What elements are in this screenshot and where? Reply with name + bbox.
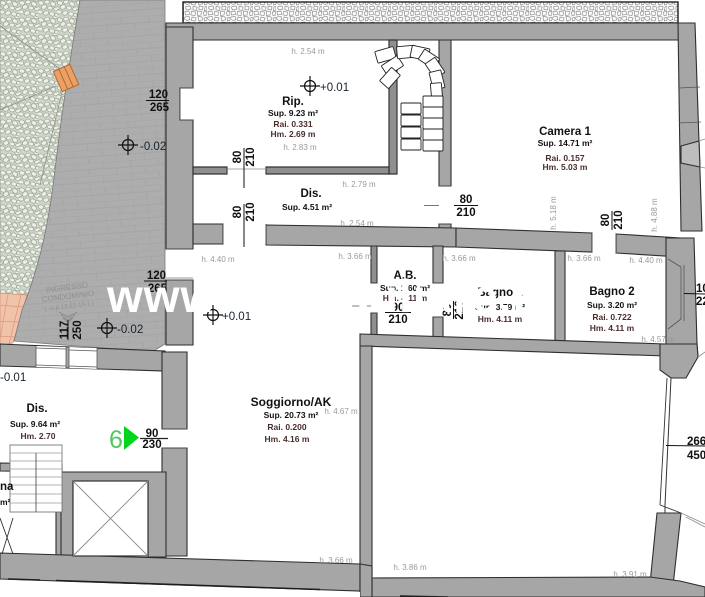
- svg-text:22: 22: [696, 296, 705, 308]
- svg-text:h. 3.66 m: h. 3.66 m: [442, 254, 476, 263]
- svg-text:-0.02: -0.02: [140, 141, 166, 153]
- svg-text:h. 4.57 m: h. 4.57 m: [641, 335, 675, 344]
- svg-text:+0.01: +0.01: [320, 82, 349, 94]
- svg-text:Rai. 0.200: Rai. 0.200: [267, 422, 306, 432]
- svg-text:230: 230: [142, 439, 161, 451]
- svg-text:-0.02: -0.02: [117, 324, 143, 336]
- svg-text:210: 210: [245, 147, 257, 166]
- svg-text:h. 2.54 m: h. 2.54 m: [340, 219, 374, 228]
- svg-text:h. 3.86 m: h. 3.86 m: [393, 563, 427, 572]
- svg-text:265: 265: [150, 102, 170, 114]
- svg-text:Rai. 0.331: Rai. 0.331: [273, 119, 312, 129]
- svg-text:m²: m²: [0, 497, 11, 507]
- svg-text:-0.01: -0.01: [0, 372, 26, 384]
- svg-text:Rai. 0.722: Rai. 0.722: [592, 312, 631, 322]
- svg-text:117: 117: [59, 321, 71, 340]
- svg-text:h. 4.88 m: h. 4.88 m: [650, 198, 659, 232]
- svg-text:80: 80: [460, 194, 473, 206]
- svg-text:Hm. 4.11 m: Hm. 4.11 m: [590, 323, 635, 333]
- svg-text:Rip.: Rip.: [282, 96, 304, 108]
- svg-text:Sup. 9.64 m²: Sup. 9.64 m²: [10, 419, 60, 429]
- svg-text:6: 6: [109, 426, 123, 454]
- svg-text:Bagno 2: Bagno 2: [589, 286, 634, 298]
- svg-text:120: 120: [149, 89, 168, 101]
- svg-text:h. 3.66 m: h. 3.66 m: [319, 556, 353, 565]
- svg-text:Hm. 5.03 m: Hm. 5.03 m: [543, 162, 588, 172]
- svg-text:80: 80: [600, 214, 612, 227]
- svg-text:Hm. 4.16 m: Hm. 4.16 m: [265, 434, 310, 444]
- svg-text:210: 210: [456, 207, 475, 219]
- svg-text:na: na: [0, 481, 14, 493]
- svg-text:h. 5.18 m: h. 5.18 m: [549, 196, 558, 230]
- svg-text:h. 4.67 m: h. 4.67 m: [324, 407, 358, 416]
- svg-text:250: 250: [72, 320, 84, 339]
- svg-text:h. 3.66 m: h. 3.66 m: [338, 252, 372, 261]
- svg-text:Hm. 2.70: Hm. 2.70: [21, 431, 56, 441]
- svg-text:Sup. 14.71 m²: Sup. 14.71 m²: [538, 138, 593, 148]
- svg-text:Dis.: Dis.: [300, 188, 321, 200]
- svg-text:h. 3.66 m: h. 3.66 m: [567, 254, 601, 263]
- svg-text:450: 450: [687, 450, 705, 462]
- svg-text:h. 4.40 m: h. 4.40 m: [629, 256, 663, 265]
- svg-text:Dis.: Dis.: [26, 403, 47, 415]
- svg-text:80: 80: [232, 206, 244, 219]
- svg-text:h. 2.83 m: h. 2.83 m: [283, 143, 317, 152]
- svg-text:Sup. 4.51 m²: Sup. 4.51 m²: [282, 202, 332, 212]
- svg-text:Sup. 9.23 m²: Sup. 9.23 m²: [268, 108, 318, 118]
- svg-text:h. 3.91 m: h. 3.91 m: [613, 570, 647, 579]
- svg-text:h. 2.79 m: h. 2.79 m: [342, 180, 376, 189]
- svg-text:210: 210: [613, 210, 625, 229]
- svg-text:h. 2.54 m: h. 2.54 m: [291, 47, 325, 56]
- svg-text:10: 10: [696, 283, 705, 295]
- svg-text:Hm. 2.69 m: Hm. 2.69 m: [271, 129, 316, 139]
- svg-text:210: 210: [245, 202, 257, 221]
- svg-text:Soggiorno/AK: Soggiorno/AK: [251, 395, 332, 409]
- svg-text:Camera 1: Camera 1: [539, 126, 591, 138]
- svg-text:Sup. 20.73 m²: Sup. 20.73 m²: [264, 410, 319, 420]
- svg-text:80: 80: [232, 151, 244, 164]
- svg-text:Sup. 3.20 m²: Sup. 3.20 m²: [587, 300, 637, 310]
- svg-text:www.immobiliare.it: www.immobiliare.it: [106, 270, 542, 322]
- svg-text:h. 4.40 m: h. 4.40 m: [201, 255, 235, 264]
